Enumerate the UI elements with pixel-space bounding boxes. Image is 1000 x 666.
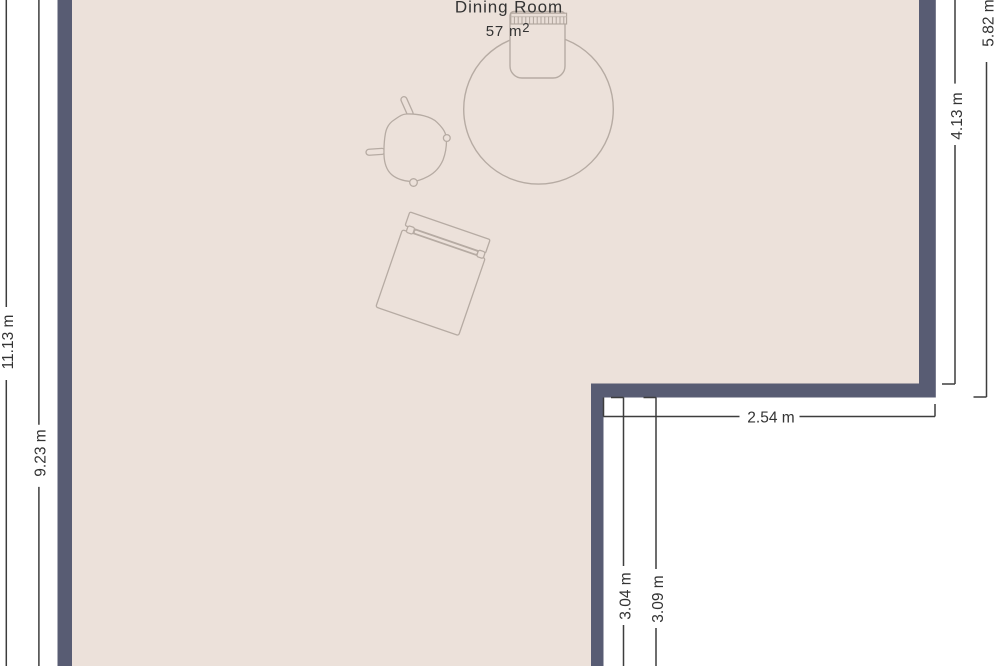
svg-text:3.04 m: 3.04 m	[617, 572, 634, 619]
svg-text:9.23 m: 9.23 m	[33, 429, 50, 476]
svg-text:11.13 m: 11.13 m	[0, 315, 17, 370]
svg-text:2.54 m: 2.54 m	[747, 409, 794, 426]
svg-text:4.13 m: 4.13 m	[949, 92, 966, 139]
svg-text:5.82 m: 5.82 m	[980, 0, 997, 47]
svg-text:3.09 m: 3.09 m	[650, 575, 667, 622]
svg-text:Dining Room: Dining Room	[455, 0, 563, 17]
